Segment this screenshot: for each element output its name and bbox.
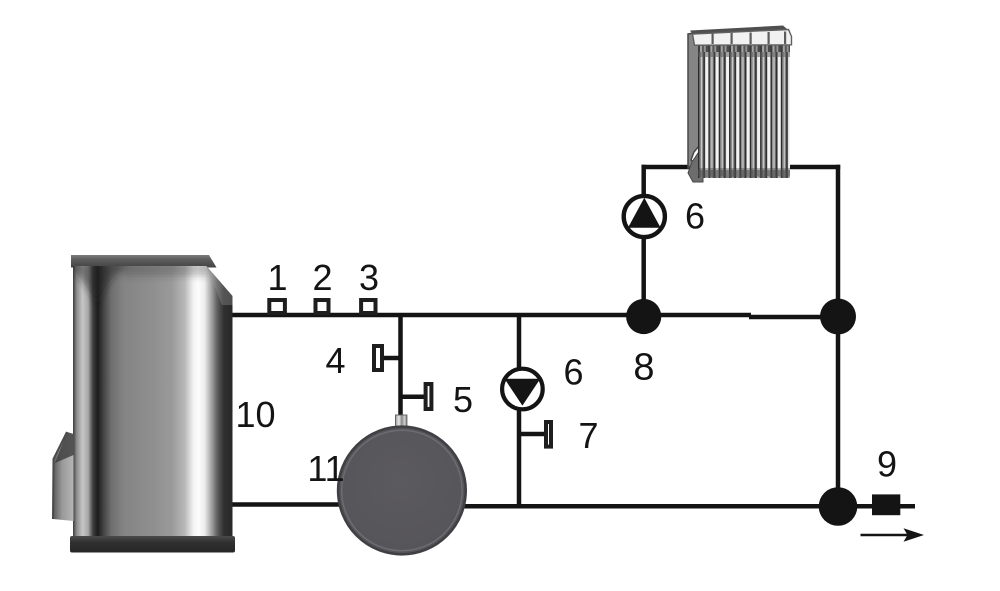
svg-text:6: 6 — [685, 196, 705, 237]
svg-text:10: 10 — [235, 394, 275, 435]
svg-text:4: 4 — [325, 340, 345, 381]
svg-text:3: 3 — [359, 257, 379, 298]
svg-text:1: 1 — [267, 257, 287, 298]
svg-text:2: 2 — [312, 257, 332, 298]
svg-text:5: 5 — [453, 379, 473, 420]
svg-text:11: 11 — [307, 448, 344, 489]
svg-text:7: 7 — [578, 415, 598, 456]
svg-text:6: 6 — [563, 352, 583, 393]
svg-text:8: 8 — [633, 347, 654, 389]
svg-text:9: 9 — [877, 444, 897, 485]
